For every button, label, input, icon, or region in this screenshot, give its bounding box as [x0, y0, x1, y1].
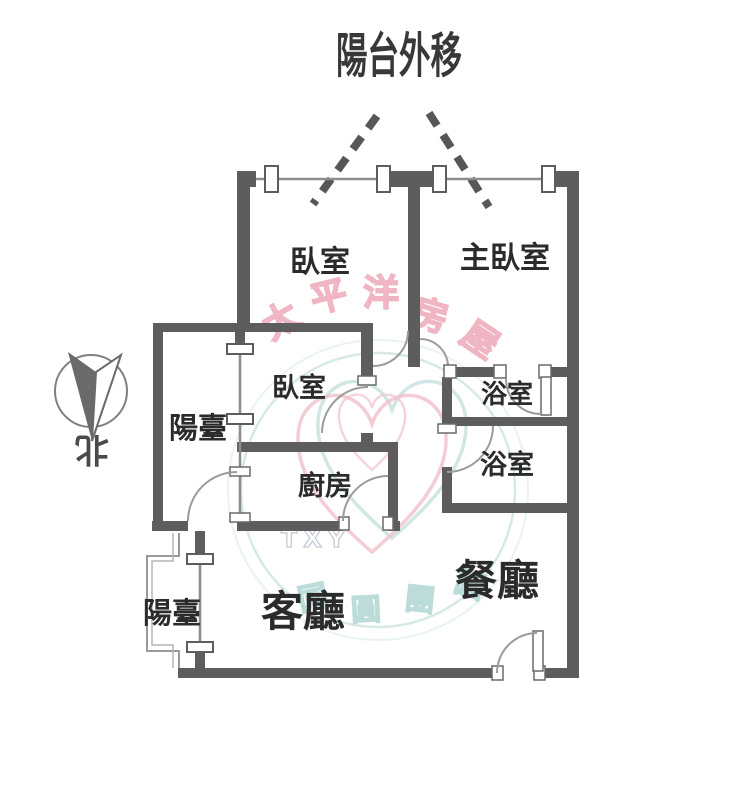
room-label-living-room: 客廳	[261, 587, 345, 636]
room-label-dining-room: 餐廳	[455, 556, 539, 605]
window-balcony-2	[227, 414, 253, 424]
compass-needle-light	[92, 355, 121, 441]
window-living-1	[187, 554, 213, 564]
window-top-4	[542, 166, 555, 192]
wall-bedroom1-left	[237, 171, 250, 331]
room-label-bedroom1: 臥室	[290, 245, 350, 280]
watermark-brand-char: 洋	[363, 273, 399, 314]
room-label-master-bedroom: 主臥室	[460, 241, 550, 276]
page-title: 陽台外移	[336, 28, 462, 84]
callout-dashed-line-left	[313, 116, 377, 204]
watermark-brand-char: 太	[255, 295, 307, 349]
wall-mid-horizontal	[153, 323, 371, 332]
wall-kitchen-top	[237, 442, 398, 452]
floorplan-page: 太 平 洋 房 屋 同 圓 團 圓 TXY 陽台外移	[0, 0, 738, 800]
wall-bottom-left	[178, 668, 497, 678]
floorplan-canvas: 太 平 洋 房 屋 同 圓 團 圓 TXY 陽台外移	[0, 0, 738, 800]
wall-bedroom-divider	[408, 179, 420, 367]
door-leaf-bath1	[541, 377, 551, 415]
watermark-brand-char: 平	[307, 273, 352, 321]
wall-bath2-bottom	[442, 503, 567, 513]
window-living-2	[187, 642, 213, 652]
door-arc-master	[420, 339, 448, 367]
wall-bath-divider	[442, 417, 567, 426]
watermark-ring-char: 圓	[350, 592, 382, 629]
window-top-3	[433, 166, 446, 192]
wall-right-outer	[567, 171, 579, 678]
compass-north-label: 北	[75, 429, 109, 469]
watermark-ring-char: 團	[403, 582, 436, 620]
window-top-1	[265, 166, 278, 192]
window-top-2	[377, 166, 390, 192]
room-label-bathroom-lower: 浴室	[480, 449, 534, 481]
door-leaf-entrance	[533, 631, 543, 671]
watermark-brand-char: 屋	[453, 313, 506, 367]
room-label-kitchen: 廚房	[298, 470, 352, 502]
wall-bath1-left	[442, 377, 452, 417]
room-label-bedroom3: 臥室	[272, 372, 326, 404]
wall-balcony-left	[153, 323, 163, 530]
door-arc-bedroom1	[373, 331, 408, 366]
compass: 北	[55, 352, 127, 469]
room-label-balcony-lower: 陽臺	[143, 596, 201, 630]
room-label-balcony-left: 陽臺	[169, 411, 227, 445]
room-label-bathroom-upper: 浴室	[481, 379, 533, 410]
window-balcony-1	[227, 344, 253, 354]
